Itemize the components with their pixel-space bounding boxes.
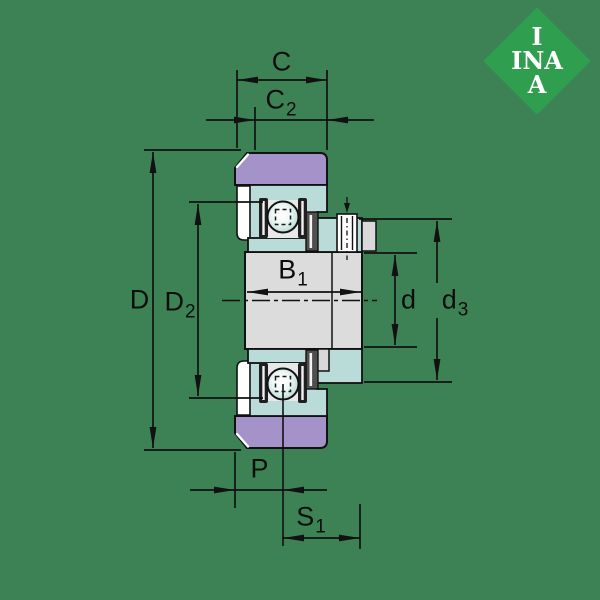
dim-label-C: C [272,49,293,76]
seal-left-bottom [237,361,250,415]
cage-bar-bottom-left-highlight [262,366,264,400]
ball-top [268,202,299,233]
bearing-dimension-drawing: C C2 D D2 B1 d d3 P S1 I INA A [0,0,600,600]
seal-right-top-highlight [310,215,313,248]
bearing-part [222,153,377,546]
dim-label-C2: C2 [265,87,296,114]
ina-logo: I INA A [499,23,575,99]
cage-bar-bottom-right-highlight [301,366,303,400]
seal-right-bottom-highlight [310,353,313,386]
seal-left-top [237,186,250,240]
dim-label-d3: d3 [442,287,469,314]
outer-ring-top [235,153,327,185]
set-screw [337,197,357,260]
ina-logo-text: I INA A [477,9,597,113]
dim-label-B1: B1 [278,257,308,284]
ina-logo-line-3: A [528,73,547,97]
cage-bar-top-left-highlight [262,201,264,235]
dim-label-d: d [401,287,417,314]
cage-bar-top-right-highlight [301,201,303,235]
dim-label-D: D [130,287,151,314]
locking-collar-top-edge [362,221,376,251]
dim-label-P: P [250,456,269,483]
dim-label-S1: S1 [296,504,326,531]
set-screw-arrow [344,203,350,213]
dim-label-D2: D2 [164,289,195,316]
outer-ring-bottom [235,416,327,448]
